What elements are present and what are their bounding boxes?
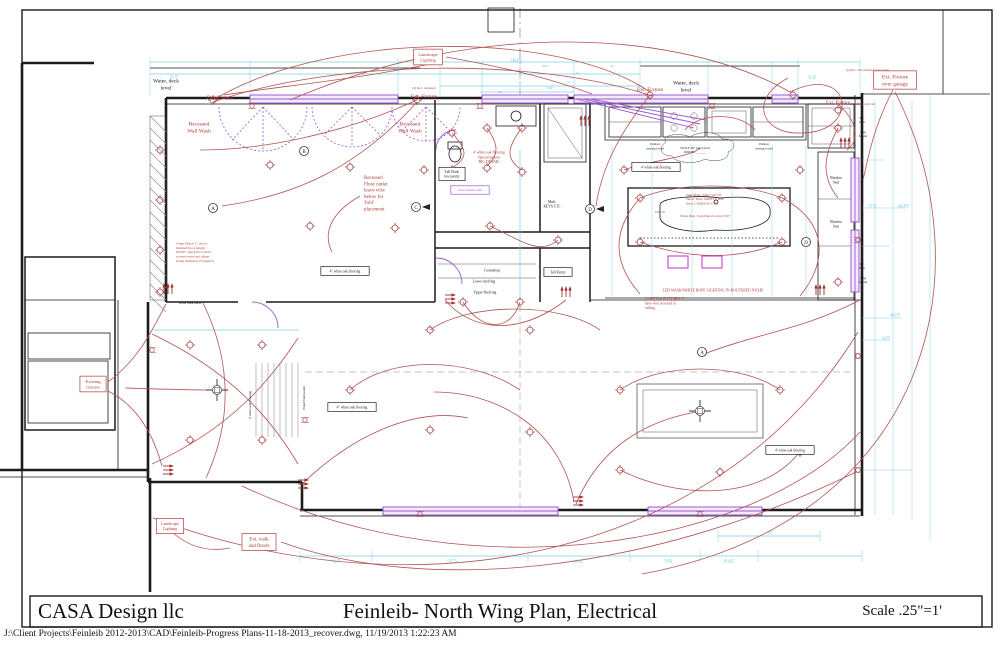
svg-text:Tall Flushlow pantry: Tall Flushlow pantry [444,170,460,179]
plan-label: 14 [566,80,570,84]
plan-label: Lower shelving [473,279,496,283]
plan-label: Ext. walkand floods [242,534,276,551]
plan-marker: B [300,147,309,156]
recessed-light-symbol [482,163,492,173]
svg-text:T.C.light: T.C.light [859,262,865,270]
plan-label: 70.76 [664,559,672,563]
svg-text:LED WASH/WHITE ROPE LIGHTING I: LED WASH/WHITE ROPE LIGHTING IN ROUTERED… [663,288,764,292]
plan-label: Ext. Fixture [411,94,438,100]
recessed-light-symbol [419,165,429,175]
svg-text:WOLF 48" (dual fuel)MODEL ____: WOLF 48" (dual fuel)MODEL ______ [680,146,709,154]
plan-label: Pulloutcutting board [755,142,773,150]
svg-text:4" white oak flooring: 4" white oak flooring [337,405,368,409]
plan-label: LandscapeLighting [156,519,183,534]
recessed-light-symbol [265,160,275,170]
electrical-symbols [148,90,862,517]
plan-label: T.C.light [859,262,865,270]
plan-label: 27 [498,90,502,94]
plan-label: Ext. Fixture [637,87,664,93]
plan-marker: C [412,203,431,212]
svg-text:4' white oak flooring: 4' white oak flooring [641,165,671,169]
plan-marker: A [698,348,707,357]
plan-label: Tall Pantry [544,268,572,277]
recessed-light-symbol [155,195,165,205]
svg-text:A: A [700,351,704,356]
plan-label: 4" white oak flooring [328,403,376,412]
svg-text:WindowSeat: WindowSeat [830,220,843,229]
svg-text:Some March 1" abovefinished fl: Some March 1" abovefinished floor height… [176,241,214,263]
plan-label: LED WASH/WHITE ROPE LIGHTING IN ROUTERED… [663,288,764,292]
plan-label: PlugMount [859,276,868,284]
svg-text:121: 121 [767,530,773,534]
svg-text:Pulloutcutting board: Pulloutcutting board [646,142,664,150]
svg-text:41: 41 [610,64,614,68]
plan-label: 84.125 [573,559,583,563]
plan-label: Existingfixtures [80,376,106,392]
svg-text:LandscapeLighting: LandscapeLighting [418,52,437,63]
plan-label: Wood flush outlet [302,386,306,410]
plan-label: Waste Disp. Switch/knob contol 9'10" [680,214,731,218]
plan-label: 4" white oak flooring [321,267,369,276]
svg-text:4' white oak flooring: 4' white oak flooring [248,391,252,420]
plan-label: RecessedWall Wash [187,121,211,134]
svg-text:4' white oak flooringSpecial p: 4' white oak flooringSpecial pattern'BIG… [473,151,505,165]
drawing-title: Feinleib- North Wing Plan, Electrical [0,599,1000,624]
svg-text:Countertop: Countertop [484,268,500,272]
svg-text:84.125: 84.125 [573,559,583,563]
drawing-sheet: Water, decklevelExt. FixtureRecessedWall… [0,0,1000,647]
floor-plan-canvas: Water, decklevelExt. FixtureRecessedWall… [0,0,1000,647]
svg-text:51.75: 51.75 [170,75,178,79]
recessed-light-symbol [305,221,315,231]
plan-label: Upper Shelving [474,290,497,294]
svg-text:16.87: 16.87 [546,86,554,90]
plan-label: Wood flush outlet [179,301,202,305]
generated-geometry [150,116,298,437]
plan-label: RecessedFloor outletleave wirebelow for'… [364,176,388,212]
plan-label: 134.375 [510,58,522,62]
plan-label: Tall Flushlow pantry [439,167,465,180]
svg-text:(2) Rec. mounted: (2) Rec. mounted [412,86,436,90]
plan-label: 16.87 [546,86,554,90]
ceiling-fan-symbol [689,400,711,422]
svg-text:141.875: 141.875 [897,204,909,208]
plan-label: Pulloutcutting board [646,142,664,150]
plan-label: 41 [610,64,614,68]
plan-label: 10.75 [882,336,890,340]
file-path: J:\Client Projects\Feinleib 2012-2013\CA… [4,629,457,639]
svg-text:D: D [588,208,592,213]
svg-text:10.75: 10.75 [882,336,890,340]
plan-label: 75.75 [868,204,876,208]
plan-label: 141.875 [897,204,909,208]
recessed-light-symbol [257,435,267,445]
svg-text:31.25: 31.25 [808,75,816,79]
svg-text:Ext. Fixture: Ext. Fixture [411,94,438,100]
svg-text:LIGHTING FIXTURES ??have wire: LIGHTING FIXTURES ??have wire recessed i… [645,297,685,310]
svg-text:Upper Shelving: Upper Shelving [474,290,497,294]
svg-text:A: A [211,207,215,212]
switch-symbol [573,495,584,506]
switch-symbol [839,137,850,148]
plan-label: 4' white oak flooring [632,163,680,172]
svg-text:Water, decklevel: Water, decklevel [673,80,699,93]
plan-label: 44.375 [890,313,900,317]
recessed-light-symbol [155,245,165,255]
switch-symbol [814,284,825,295]
svg-text:(2) Rec. wire mounted wall out: (2) Rec. wire mounted wall outlet [846,68,889,72]
svg-text:14: 14 [566,80,570,84]
plan-label: DW 70 [655,210,665,214]
plan-label: 61.625 [724,559,734,563]
windows-doors-layer [219,95,859,515]
plan-label: 4' white oak flooringSpecial pattern'BIG… [473,151,505,165]
plan-label: Water, decklevel [673,80,699,93]
plan-label: WOLF 48" (dual fuel)MODEL ______ [680,146,709,154]
svg-text:WindowSeat: WindowSeat [830,176,843,185]
svg-text:PlugMount: PlugMount [859,130,868,138]
svg-text:Wood flush outlet: Wood flush outlet [302,386,306,410]
plan-label: Ext. Fixtureover garage [874,71,917,89]
switch-symbol [163,464,174,475]
svg-text:44.375: 44.375 [890,313,900,317]
plan-label: RecessedWall Wash [398,121,422,134]
plan-label: Wood flush outlet [451,186,489,194]
plan-label: Mult:KEYS CTL [543,200,560,209]
plan-label: PlugMount [859,130,868,138]
plan-label: 66.75 [332,559,340,563]
svg-text:24.2: 24.2 [542,64,548,68]
plan-label: 121 [767,530,773,534]
plan-marker: D [586,205,605,214]
plan-marker: A [209,204,218,213]
recessed-light-symbol [185,340,195,350]
svg-text:Wood flush outlet: Wood flush outlet [179,301,202,305]
plan-marker: D [802,238,811,247]
plan-label: Some March 1" abovefinished floor height… [176,241,214,263]
switch-symbol [560,286,571,297]
svg-text:Ext. Fixture: Ext. Fixture [637,87,664,93]
switch-symbol [298,478,309,489]
svg-text:PlugMount: PlugMount [859,276,868,284]
plan-label: 4' white oak flooring [766,446,814,455]
switch-symbol [445,293,456,304]
svg-text:75.75: 75.75 [868,204,876,208]
plan-label: (2) Rec. wire mounted wall outlet [846,68,889,72]
plan-label: Water, decklevel [153,78,179,91]
svg-text:Lower shelving: Lower shelving [473,279,496,283]
recessed-light-symbol [525,325,535,335]
plan-label: 4.1 [576,71,581,75]
recessed-light-symbol [833,277,843,287]
plan-label: T.C.light [859,116,865,124]
plan-label: 4' white oak flooring [248,391,252,420]
svg-text:DW 70: DW 70 [655,210,665,214]
recessed-light-symbol [345,162,355,172]
recessed-light-symbol [715,467,725,477]
recessed-light-symbol [257,340,267,350]
svg-text:Waste Disp. Switch/knob contol: Waste Disp. Switch/knob contol 9'10" [680,214,731,218]
svg-text:4" white oak flooring: 4" white oak flooring [330,269,361,273]
svg-text:70.76: 70.76 [664,559,672,563]
svg-text:Water, decklevel: Water, decklevel [153,78,179,91]
svg-text:Tall Pantry: Tall Pantry [550,270,566,274]
svg-text:Mult:KEYS CTL: Mult:KEYS CTL [543,200,560,209]
svg-text:LandscapeLighting: LandscapeLighting [161,521,179,531]
svg-text:RecessedWall Wash: RecessedWall Wash [398,121,422,134]
outlet-symbol [301,418,309,423]
svg-text:D: D [804,241,808,246]
recessed-light-symbol [425,425,435,435]
recessed-light-symbol [517,167,527,177]
drawing-scale: Scale .25"=1' [862,603,942,620]
recessed-light-symbol [525,427,535,437]
svg-text:4.1: 4.1 [576,71,581,75]
svg-text:4' white oak flooring: 4' white oak flooring [775,448,805,452]
svg-text:134.375: 134.375 [510,58,522,62]
svg-text:66.75: 66.75 [332,559,340,563]
switch-symbol [579,115,590,126]
svg-text:RecessedWall Wash: RecessedWall Wash [187,121,211,134]
plan-label: LandscapeLighting [414,49,443,65]
svg-text:Ext. walkand floods: Ext. walkand floods [249,538,270,549]
plan-label: 31.25 [808,75,816,79]
svg-text:Existingfixtures: Existingfixtures [85,379,101,390]
plan-label: Sink: Bold "Allia" 510718faucet: Brizo G… [686,193,724,205]
svg-text:61.625: 61.625 [724,559,734,563]
recessed-light-symbol [795,165,805,175]
recessed-light-symbol [155,287,165,297]
svg-text:Wood flush outlet: Wood flush outlet [458,188,482,192]
plan-label: WindowSeat [830,176,843,185]
plan-label: 51.75 [170,75,178,79]
svg-text:Ext. Fixture: Ext. Fixture [207,95,234,101]
plan-label: Ext. Fixture [207,95,234,101]
switch-symbol [162,283,173,294]
svg-text:T.C.light: T.C.light [859,116,865,124]
plan-label: 24.2 [542,64,548,68]
recessed-light-symbol [833,105,843,115]
svg-text:Sink: Bold "Allia" 510718fauce: Sink: Bold "Allia" 510718faucet: Brizo G… [686,193,724,205]
recessed-light-symbol [390,223,400,233]
plan-label: wood/walk to wall cab [846,102,875,106]
plan-label: (2) Rec. mounted [412,86,436,90]
plan-label: 137.75 [447,559,457,563]
recessed-light-symbol [185,435,195,445]
svg-text:Pulloutcutting board: Pulloutcutting board [755,142,773,150]
svg-text:137.75: 137.75 [447,559,457,563]
svg-text:wood/walk to wall cab: wood/walk to wall cab [846,102,875,106]
wiring-layer [108,42,935,574]
plan-label: Countertop [484,268,500,272]
svg-text:27: 27 [498,90,502,94]
plan-label: LIGHTING FIXTURES ??have wire recessed i… [645,297,685,310]
plan-label: WindowSeat [830,220,843,229]
svg-text:Ext. Fixtureover garage: Ext. Fixtureover garage [882,74,909,87]
svg-text:RecessedFloor outletleave wire: RecessedFloor outletleave wirebelow for'… [364,176,388,212]
